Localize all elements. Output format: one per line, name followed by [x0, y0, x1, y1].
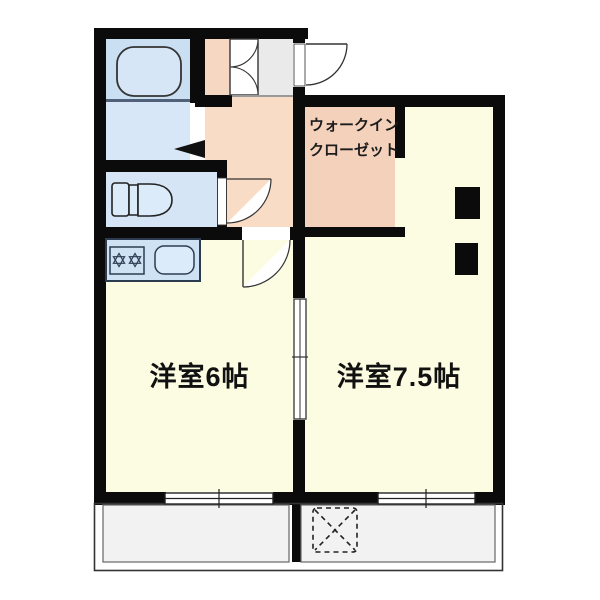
wall-bath-right [190, 39, 205, 103]
wall-left-room-top-a [94, 227, 242, 240]
wall-bottom-right [474, 492, 505, 505]
wall-balcony-divider [292, 503, 302, 562]
wall-wic-bottom [293, 227, 405, 237]
floor-plan: 洋室6帖 洋室7.5帖 ウォークイン クローゼット [0, 0, 600, 600]
hallway-area-lower [227, 97, 293, 227]
wall-center-lower [293, 420, 305, 492]
wall-entry-jamb [293, 28, 305, 43]
left-room-label: 洋室6帖 [106, 355, 293, 394]
wall-left [94, 28, 106, 505]
wall-right-top [305, 95, 505, 107]
bathroom-area [106, 39, 190, 100]
washing-machine-pad-icon [313, 508, 357, 552]
wall-bottom-left [94, 492, 166, 505]
washroom-area [106, 102, 190, 160]
right-room-label: 洋室7.5帖 [305, 355, 493, 394]
wall-storage-bottom [195, 95, 232, 107]
wall-right [493, 95, 505, 505]
wall-center-upper [293, 87, 305, 298]
toilet-area [106, 172, 217, 227]
walk-in-closet-label-line1: ウォークイン [309, 113, 399, 138]
storage-area [205, 39, 232, 95]
entrance-area [230, 39, 293, 97]
wall-top [94, 28, 308, 39]
entry-door-icon [294, 44, 347, 86]
wall-washroom-bottom [94, 160, 227, 172]
walk-in-closet-label: ウォークイン クローゼット [309, 113, 399, 163]
walk-in-closet-label-line2: クローゼット [309, 138, 399, 163]
wall-bottom-mid [273, 492, 379, 505]
